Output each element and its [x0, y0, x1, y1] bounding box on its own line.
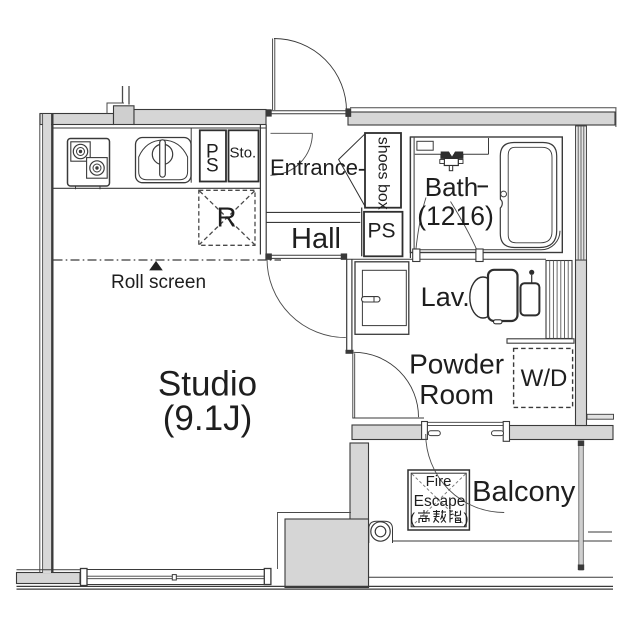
svg-text:Hall: Hall: [291, 223, 341, 255]
svg-text:Bath: Bath: [425, 172, 479, 202]
svg-text:Powder: Powder: [409, 349, 504, 380]
svg-text:Escape: Escape: [414, 493, 466, 510]
svg-text:Lav.: Lav.: [421, 282, 470, 312]
svg-text:Balcony: Balcony: [472, 476, 576, 508]
svg-text:S: S: [206, 155, 219, 176]
svg-text:PS: PS: [367, 219, 395, 242]
svg-text:Sto.: Sto.: [230, 145, 257, 162]
svg-text:Entrance: Entrance: [270, 155, 358, 180]
svg-text:W/D: W/D: [521, 365, 568, 392]
svg-text:(: (: [410, 511, 415, 528]
svg-text:(9.1J): (9.1J): [163, 399, 252, 438]
svg-text:Studio: Studio: [158, 364, 257, 403]
svg-text:): ): [464, 511, 469, 528]
svg-text:Roll screen: Roll screen: [111, 272, 206, 293]
svg-text:(1216): (1216): [417, 201, 494, 231]
svg-text:Room: Room: [419, 379, 494, 410]
svg-text:shoes box: shoes box: [375, 137, 392, 210]
svg-text:Fire: Fire: [426, 473, 452, 490]
svg-text:R: R: [217, 202, 237, 233]
